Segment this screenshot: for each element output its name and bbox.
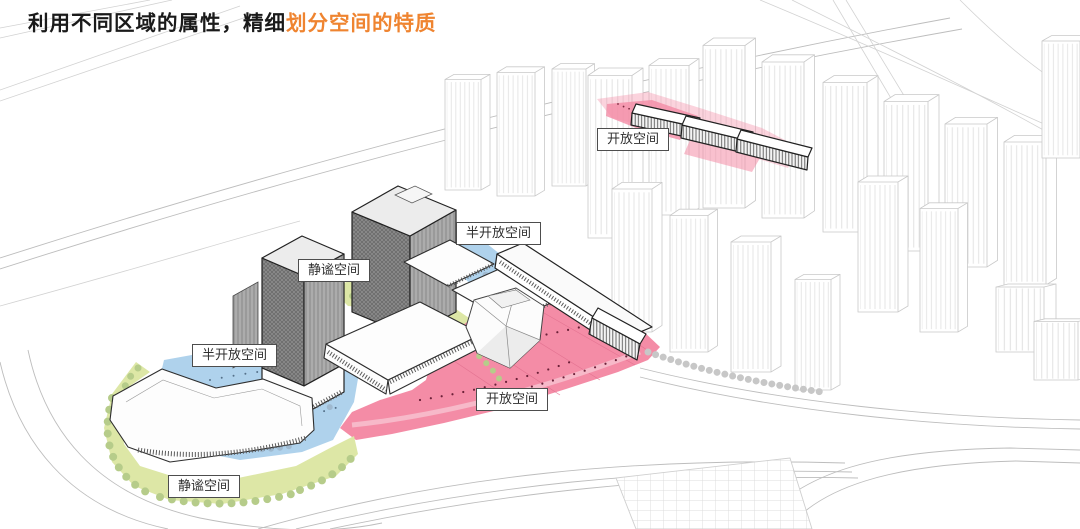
background-grid-podium [616, 458, 812, 529]
page-title-accent: 划分空间的特质 [286, 12, 437, 35]
page-title: 利用不同区域的属性，精细划分空间的特质 [28, 6, 437, 36]
site-axonometric-diagram [0, 0, 1080, 529]
zone-label-semi-open-upper: 半开放空间 [456, 222, 541, 245]
slide-canvas: 利用不同区域的属性，精细划分空间的特质 开放空间 半开放空间 静谧空间 半开放空… [0, 0, 1080, 529]
zone-label-quiet-center: 静谧空间 [298, 259, 370, 282]
zone-label-quiet-bottom: 静谧空间 [168, 475, 240, 498]
zone-label-semi-open-left: 半开放空间 [192, 344, 277, 367]
zone-label-open-space-top: 开放空间 [597, 128, 669, 151]
page-title-black: 利用不同区域的属性，精细 [28, 12, 286, 35]
zone-label-open-space-bottom: 开放空间 [476, 388, 548, 411]
